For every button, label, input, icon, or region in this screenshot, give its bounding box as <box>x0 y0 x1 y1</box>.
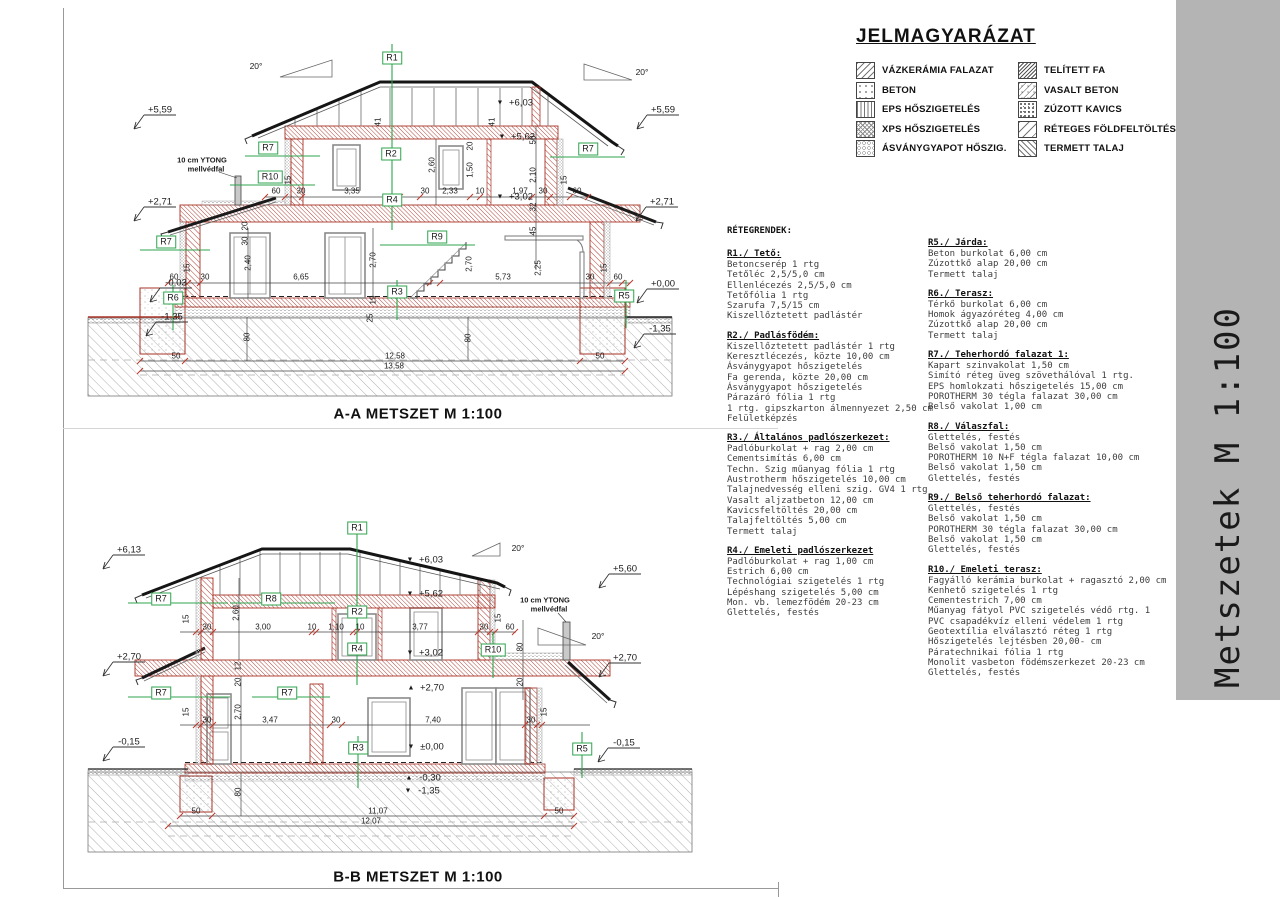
glazed-doors <box>207 688 530 764</box>
dimension-label: 10 <box>476 187 485 196</box>
layer-spec-title: R1./ Tető: <box>727 249 932 259</box>
elevation-label: +5,59 <box>148 105 172 116</box>
layer-spec-line: Beton burkolat 6,00 cm <box>928 249 1178 259</box>
dimension-label: 25 <box>366 314 375 323</box>
layer-ref-tag: R4 <box>347 643 367 656</box>
layer-spec: R7./ Teherhordó falazat 1:Kapart szinvak… <box>928 350 1178 412</box>
roof-slope-label: 20° <box>592 631 605 641</box>
dimension-label: 10 <box>356 623 365 632</box>
layer-spec-line: 1 rtg. gipszkarton álmennyezet 2,50 cm <box>727 404 932 414</box>
elevation-label: +6,03 <box>509 98 533 109</box>
wavy-hatch-swatch <box>856 140 875 157</box>
layer-spec-line: Betoncserép 1 rtg <box>727 260 932 270</box>
dimension-label: 20 <box>516 678 525 687</box>
layer-ref-tag: R6 <box>163 292 183 305</box>
layer-spec-line: PVC csapadékvíz elleni védelem 1 rtg <box>928 617 1178 627</box>
dimension-label: 6,65 <box>293 273 309 282</box>
legend-item: VASALT BETON <box>1018 81 1176 101</box>
partition-wall <box>332 608 336 660</box>
dimension-label: 50 <box>529 136 538 145</box>
zigzag-hatch-swatch <box>856 101 875 118</box>
dimension-label: 30 <box>203 623 212 632</box>
dimension-label: 7,40 <box>425 716 441 725</box>
layer-spec-title: R3./ Általános padlószerkezet: <box>727 433 932 443</box>
gravel-hatch-swatch <box>1018 101 1037 118</box>
layer-spec-line: Homok ágyazóréteg 4,00 cm <box>928 310 1178 320</box>
roof-slope-label: 20° <box>512 543 525 553</box>
legend-title: JELMAGYARÁZAT <box>856 26 1186 48</box>
dimension-label: 30 <box>539 187 548 196</box>
layer-ref-tag: R5 <box>572 743 592 756</box>
layer-spec: R8./ Válaszfal:Glettelés, festésBelső va… <box>928 422 1178 484</box>
layer-ref-tag: R7 <box>151 593 171 606</box>
layer-specs-heading: RÉTEGRENDEK: <box>727 226 932 236</box>
layer-spec: R5./ Járda:Beton burkolat 6,00 cmZúzottk… <box>928 238 1178 280</box>
layer-spec-line: Glettelés, festés <box>928 474 1178 484</box>
section-b-title: B-B METSZET M 1:100 <box>333 869 503 886</box>
layer-spec-line: Glettelés, festés <box>928 668 1178 678</box>
dimension-label: 41 <box>488 118 497 127</box>
elevation-label: +6,03 <box>419 555 443 566</box>
dimension-label: 2,40 <box>244 255 253 271</box>
dimension-label: 20 <box>234 678 243 687</box>
dimension-label: 15 <box>560 176 569 185</box>
legend-label: ZÚZOTT KAVICS <box>1044 104 1122 115</box>
layer-spec-line: Glettelés, festés <box>727 608 932 618</box>
dimension-label: 12,07 <box>361 817 381 826</box>
layer-spec-title: R2./ Padlásfödém: <box>727 331 932 341</box>
sheet-title-bar: Metszetek M 1:100 <box>1176 0 1280 700</box>
legend: JELMAGYARÁZAT VÁZKERÁMIA FALAZATBETONEPS… <box>856 26 1186 159</box>
section-b-geometry <box>80 520 700 890</box>
fill-hatch-swatch <box>1018 121 1037 138</box>
layer-spec-line: Fagyálló kerámia burkolat + ragasztó 2,0… <box>928 576 1178 586</box>
ground-hatch <box>88 772 692 852</box>
layer-spec-line: Kiszellőztetett padlástér 1 rtg <box>727 342 932 352</box>
dimension-label: 10 <box>308 623 317 632</box>
legend-column-left: VÁZKERÁMIA FALAZATBETONEPS HŐSZIGETELÉSX… <box>856 61 1004 159</box>
storey-slab <box>135 660 610 676</box>
layer-spec-line: Páratechnikai fólia 1 rtg <box>928 648 1178 658</box>
layer-spec: R3./ Általános padlószerkezet:Padlóburko… <box>727 433 932 537</box>
legend-item: TELÍTETT FA <box>1018 61 1176 81</box>
layer-spec-line: Belső vakolat 1,50 cm <box>928 535 1178 545</box>
legend-item: XPS HŐSZIGETELÉS <box>856 120 1004 140</box>
dimension-label: 2,33 <box>442 187 458 196</box>
layer-ref-tag: R4 <box>382 194 402 207</box>
roof-slope-label: 20° <box>636 67 649 77</box>
layer-spec-line: POROTHERM 30 tégla falazat 30,00 cm <box>928 392 1178 402</box>
legend-item: RÉTEGES FÖLDFELTÖLTÉS <box>1018 120 1176 140</box>
dimension-label: 5,73 <box>495 273 511 282</box>
dimension-label: 60 <box>573 187 582 196</box>
layer-ref-tag: R7 <box>151 687 171 700</box>
drawing-sheet: { "titlebar": { "text": "Metszetek M 1:1… <box>0 0 1280 897</box>
partition-wall <box>378 608 382 660</box>
dimension-label: 13,58 <box>384 362 404 371</box>
layer-spec-line: Belső vakolat 1,50 cm <box>928 514 1178 524</box>
layer-spec-line: Kavicsfeltöltés 20,00 cm <box>727 506 932 516</box>
layer-spec-title: R8./ Válaszfal: <box>928 422 1178 432</box>
layer-spec-line: Techn. Szig műanyag fólia 1 rtg <box>727 465 932 475</box>
dimension-label: 15 <box>540 708 549 717</box>
section-b-drawing: +6,13+2,70-0,15+5,60+2,70-0,15▼+6,03▼+5,… <box>80 520 700 890</box>
garage-door <box>505 236 584 298</box>
honey-hatch-swatch <box>856 121 875 138</box>
dimension-label: 12 <box>234 662 243 671</box>
elevation-label: +5,59 <box>651 105 675 116</box>
dimension-label: 2,25 <box>534 260 543 276</box>
load-bearing-wall <box>525 688 537 764</box>
section-a-drawing: +5,59+2,71-0,03-1,35+5,59+2,71+0,00-1,35… <box>80 30 680 430</box>
layer-spec-line: Glettelés, festés <box>928 545 1178 555</box>
elevation-label: +0,00 <box>651 279 675 290</box>
layer-spec-line: Tetőléc 2,5/5,0 cm <box>727 270 932 280</box>
section-a-geometry <box>80 30 680 430</box>
dimension-label: 30 <box>480 623 489 632</box>
dimension-label: 11,07 <box>368 807 387 816</box>
dimension-label: 50 <box>555 807 564 816</box>
layer-spec-title: R9./ Belső teherhordó falazat: <box>928 493 1178 503</box>
legend-label: VASALT BETON <box>1044 85 1119 96</box>
layer-spec-line: Talajnedvesség elleni szig. GV4 1 rtg <box>727 485 932 495</box>
dimension-label: 15 <box>600 264 609 273</box>
legend-label: RÉTEGES FÖLDFELTÖLTÉS <box>1044 124 1176 135</box>
layer-ref-tag: R8 <box>261 593 281 606</box>
layer-spec-title: R10./ Emeleti terasz: <box>928 565 1178 575</box>
material-note: 10 cm YTONG <box>520 596 570 605</box>
layer-spec: R6./ Terasz:Térkő burkolat 6,00 cmHomok … <box>928 289 1178 341</box>
legend-label: BETON <box>882 85 916 96</box>
layer-specs-left: RÉTEGRENDEK: R1./ Tető:Betoncserép 1 rtg… <box>727 226 932 628</box>
layer-spec-line: Monolit vasbeton födémszerkezet 20-23 cm <box>928 658 1178 668</box>
dimension-label: 2,70 <box>234 704 243 720</box>
dimension-label: 45 <box>529 227 538 236</box>
level-marker-icon: ▲ <box>406 775 413 782</box>
load-bearing-wall <box>186 222 200 298</box>
wood-hatch-swatch <box>1018 62 1037 79</box>
elevation-label: +3,02 <box>419 648 443 659</box>
staircase <box>410 242 466 298</box>
dimension-label: 20 <box>241 222 250 231</box>
material-note: 10 cm YTONG <box>177 156 227 165</box>
dimension-label: 50 <box>192 807 201 816</box>
layer-spec-line: POROTHERM 10 N+F tégla falazat 10,00 cm <box>928 453 1178 463</box>
legend-item: BETON <box>856 81 1004 101</box>
layer-spec: R10./ Emeleti terasz:Fagyálló kerámia bu… <box>928 565 1178 679</box>
dimension-label: 80 <box>516 643 525 652</box>
layer-ref-tag: R7 <box>277 687 297 700</box>
dimension-label: 15 <box>494 614 503 623</box>
dimension-label: 60 <box>170 273 179 282</box>
level-marker-icon: ▼ <box>405 788 412 795</box>
slope-indicator <box>538 628 586 645</box>
dots-hatch-swatch <box>856 82 875 99</box>
layer-spec: R4./ Emeleti padlószerkezetPadlóburkolat… <box>727 546 932 619</box>
layer-spec-line: Kiszellőztetett padlástér <box>727 311 932 321</box>
dimension-label: 80 <box>243 333 252 342</box>
legend-label: XPS HŐSZIGETELÉS <box>882 124 980 135</box>
load-bearing-wall <box>590 222 604 298</box>
slope-indicator <box>472 543 500 556</box>
floor-slab <box>185 764 545 773</box>
material-note: mellvédfal <box>531 605 568 614</box>
layer-spec-line: Estrich 6,00 cm <box>727 567 932 577</box>
ytong-parapet <box>235 176 241 205</box>
dimension-label: 15 <box>183 264 192 273</box>
layer-spec-title: R4./ Emeleti padlószerkezet <box>727 546 932 556</box>
diag-hatch-swatch <box>856 62 875 79</box>
dimension-label: 1,97 <box>512 187 528 196</box>
layer-spec-line: Műanyag fátyol PVC szigetelés védő rtg. … <box>928 606 1178 616</box>
rebar-hatch-swatch <box>1018 82 1037 99</box>
elevation-label: +2,71 <box>650 197 674 208</box>
slope-indicator <box>584 64 632 80</box>
layer-ref-tag: R7 <box>578 143 598 156</box>
dimension-label: 2,60 <box>428 157 437 173</box>
legend-label: TERMETT TALAJ <box>1044 143 1124 154</box>
dimension-label: 50 <box>172 352 181 361</box>
level-marker-icon: ▼ <box>407 557 414 564</box>
layer-specs-right: R5./ Járda:Beton burkolat 6,00 cmZúzottk… <box>928 238 1178 688</box>
layer-spec-line: POROTHERM 30 tégla falazat 30,00 cm <box>928 525 1178 535</box>
dimension-label: 15 <box>182 708 191 717</box>
layer-spec-line: Lépéshang szigetelés 5,00 cm <box>727 588 932 598</box>
internal-wall <box>310 684 323 764</box>
level-marker-icon: ▼ <box>408 744 415 751</box>
level-marker-icon: ▼ <box>497 194 504 201</box>
layer-spec-line: Hőszigetelés lejtésben 20,00- cm <box>928 637 1178 647</box>
dimension-label: 1,10 <box>328 623 344 632</box>
dimension-label: 80 <box>464 334 473 343</box>
layer-spec-line: Belső vakolat 1,50 cm <box>928 463 1178 473</box>
foundation <box>544 778 574 810</box>
dimension-label: 19 <box>369 296 378 305</box>
elevation-label: ±0,00 <box>420 742 444 753</box>
level-marker-icon: ▼ <box>407 650 414 657</box>
layer-ref-tag: R10 <box>481 644 506 657</box>
dimension-label: 30 <box>297 187 306 196</box>
dimension-label: 2,10 <box>529 167 538 183</box>
layer-spec-line: Padlóburkolat + rag 2,00 cm <box>727 444 932 454</box>
layer-spec-line: Cementestrich 7,00 cm <box>928 596 1178 606</box>
dimension-label: 2,60 <box>232 605 241 621</box>
layer-spec-line: Geotextília elválasztó réteg 1 rtg <box>928 627 1178 637</box>
upper-wall <box>201 578 213 660</box>
layer-ref-tag: R7 <box>156 236 176 249</box>
slope-indicator <box>280 60 332 77</box>
roof-slope-label: 20° <box>250 61 263 71</box>
layer-spec-line: Kenhető szigetelés 1 rtg <box>928 586 1178 596</box>
soil-hatch-swatch <box>1018 140 1037 157</box>
dimension-label: 15 <box>182 615 191 624</box>
layer-spec-line: Simító réteg üveg szövethálóval 1 rtg. <box>928 371 1178 381</box>
legend-label: VÁZKERÁMIA FALAZAT <box>882 65 994 76</box>
elevation-label: -1,35 <box>161 312 183 323</box>
layer-spec-title: R7./ Teherhordó falazat 1: <box>928 350 1178 360</box>
floor-slab <box>175 298 630 307</box>
dimension-label: 15 <box>284 176 293 185</box>
layer-spec: R2./ Padlásfödém:Kiszellőztetett padlást… <box>727 331 932 424</box>
layer-spec-line: Szarufa 7,5/15 cm <box>727 301 932 311</box>
layer-spec-line: Keresztlécezés, közte 10,00 cm <box>727 352 932 362</box>
dimension-label: 3,35 <box>344 187 360 196</box>
layer-spec-line: Térkő burkolat 6,00 cm <box>928 300 1178 310</box>
material-note: mellvédfal <box>188 165 225 174</box>
layer-spec-line: Glettelés, festés <box>928 504 1178 514</box>
elevation-label: +2,70 <box>613 653 637 664</box>
legend-item: TERMETT TALAJ <box>1018 139 1176 159</box>
sheet-border-corner <box>778 882 779 897</box>
layer-spec-line: EPS homlokzati hőszigetelés 15,00 cm <box>928 382 1178 392</box>
legend-item: VÁZKERÁMIA FALAZAT <box>856 61 1004 81</box>
layer-spec-line: Cementsimítás 6,00 cm <box>727 454 932 464</box>
elevation-label: +2,71 <box>148 197 172 208</box>
elevation-label: -0,15 <box>118 737 140 748</box>
layer-spec-line: Ásványgyapot hőszigetelés <box>727 362 932 372</box>
elevation-label: +2,70 <box>420 683 444 694</box>
dimension-label: 30 <box>421 187 430 196</box>
dimension-label: 2,70 <box>369 252 378 268</box>
dimension-label: 30 <box>586 273 595 282</box>
layer-spec-line: Felületképzés <box>727 414 932 424</box>
dimension-label: 60 <box>272 187 281 196</box>
legend-item: ÁSVÁNYGYAPOT HŐSZIG. <box>856 139 1004 159</box>
layer-ref-tag: R1 <box>382 52 402 65</box>
elevation-label: -0,15 <box>613 738 635 749</box>
layer-ref-tag: R2 <box>347 606 367 619</box>
layer-ref-tag: R5 <box>614 290 634 303</box>
layer-ref-tag: R10 <box>258 171 283 184</box>
layer-spec-line: Belső vakolat 1,00 cm <box>928 402 1178 412</box>
elevation-label: +6,13 <box>117 545 141 556</box>
sheet-title: Metszetek M 1:100 <box>1208 306 1248 688</box>
elevation-label: +5,62 <box>419 589 443 600</box>
layer-ref-tag: R9 <box>427 231 447 244</box>
elevation-label: +2,70 <box>117 652 141 663</box>
layer-spec-line: Zúzottkő alap 20,00 cm <box>928 259 1178 269</box>
elevation-label: +5,60 <box>613 564 637 575</box>
section-a-title: A-A METSZET M 1:100 <box>334 406 503 423</box>
layer-spec-line: Zúzottkő alap 20,00 cm <box>928 320 1178 330</box>
layer-spec-line: Mon. vb. lemezfödém 20-23 cm <box>727 598 932 608</box>
level-marker-icon: ▼ <box>499 134 506 141</box>
layer-spec-line: Ellenlécezés 2,5/5,0 cm <box>727 281 932 291</box>
layer-spec-line: Tetőfólia 1 rtg <box>727 291 932 301</box>
ytong-parapet <box>563 622 570 660</box>
elevation-label: -0,30 <box>419 773 441 784</box>
dimension-label: 30 <box>201 273 210 282</box>
dimension-label: 30 <box>241 237 250 246</box>
legend-column-right: TELÍTETT FAVASALT BETONZÚZOTT KAVICSRÉTE… <box>1018 61 1176 159</box>
layer-ref-tag: R1 <box>347 522 367 535</box>
legend-item: EPS HŐSZIGETELÉS <box>856 100 1004 120</box>
layer-spec-line: Termett talaj <box>928 331 1178 341</box>
layer-spec-line: Termett talaj <box>727 527 932 537</box>
elevation-label: -1,35 <box>649 324 671 335</box>
layer-spec-line: Ásványgyapot hőszigetelés <box>727 383 932 393</box>
layer-spec-line: Vasalt aljzatbeton 12,00 cm <box>727 496 932 506</box>
layer-spec: R1./ Tető:Betoncserép 1 rtgTetőléc 2,5/5… <box>727 249 932 322</box>
layer-spec-line: Párazáró fólia 1 rtg <box>727 393 932 403</box>
partition-wall <box>487 139 491 205</box>
dimension-label: 30 <box>332 716 341 725</box>
legend-label: EPS HŐSZIGETELÉS <box>882 104 980 115</box>
layer-spec-line: Fa gerenda, közte 20,00 cm <box>727 373 932 383</box>
layer-spec-line: Glettelés, festés <box>928 433 1178 443</box>
dimension-label: 12,58 <box>385 352 405 361</box>
layer-spec-line: Technológiai szigetelés 1 rtg <box>727 577 932 587</box>
legend-item: ZÚZOTT KAVICS <box>1018 100 1176 120</box>
dimension-label: 20 <box>466 142 475 151</box>
layer-ref-tag: R2 <box>381 148 401 161</box>
layer-spec-line: Belső vakolat 1,50 cm <box>928 443 1178 453</box>
layer-ref-tag: R7 <box>258 142 278 155</box>
sheet-border-left <box>63 8 64 889</box>
dimension-label: 3,00 <box>255 623 271 632</box>
dimension-label: 41 <box>374 118 383 127</box>
layer-spec: R9./ Belső teherhordó falazat:Glettelés,… <box>928 493 1178 555</box>
dimension-label: 32 <box>529 203 538 212</box>
layer-spec-line: Padlóburkolat + rag 1,00 cm <box>727 557 932 567</box>
dimension-label: 60 <box>614 273 623 282</box>
layer-ref-tag: R3 <box>387 286 407 299</box>
layer-spec-line: Termett talaj <box>928 270 1178 280</box>
level-marker-icon: ▼ <box>497 100 504 107</box>
layer-spec-title: R5./ Járda: <box>928 238 1178 248</box>
dimension-label: 2,70 <box>465 256 474 272</box>
dimension-label: 60 <box>506 623 515 632</box>
dimension-label: 30 <box>527 716 536 725</box>
layer-spec-title: R6./ Terasz: <box>928 289 1178 299</box>
dimension-label: 50 <box>596 352 605 361</box>
dimension-label: 80 <box>234 788 243 797</box>
dimension-label: 30 <box>203 716 212 725</box>
elevation-label: -1,35 <box>418 786 440 797</box>
legend-label: TELÍTETT FA <box>1044 65 1105 76</box>
dimension-label: 1,50 <box>466 162 475 178</box>
level-marker-icon: ▲ <box>408 685 415 692</box>
layer-spec-line: Austrotherm hőszigetelés 10,00 cm <box>727 475 932 485</box>
layer-ref-tag: R3 <box>348 742 368 755</box>
level-marker-icon: ▼ <box>407 591 414 598</box>
layer-spec-line: Kapart szinvakolat 1,50 cm <box>928 361 1178 371</box>
dimension-label: 3,47 <box>262 716 278 725</box>
layer-spec-line: Talajfeltöltés 5,00 cm <box>727 516 932 526</box>
dimension-label: 3,77 <box>412 623 428 632</box>
legend-label: ÁSVÁNYGYAPOT HŐSZIG. <box>882 143 1007 154</box>
